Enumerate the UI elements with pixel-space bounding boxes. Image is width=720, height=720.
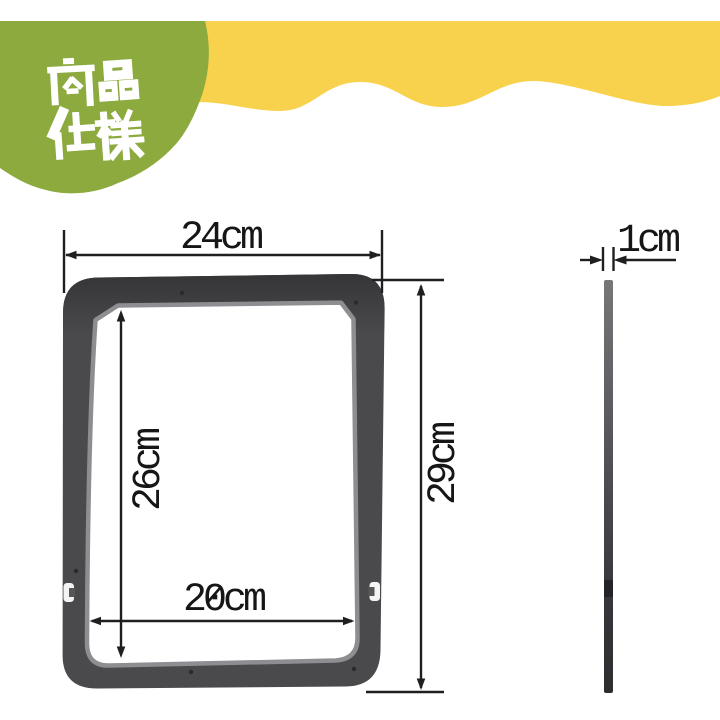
svg-text:26cm: 26cm [127,429,172,511]
svg-text:29cm: 29cm [422,423,467,505]
svg-text:20cm: 20cm [183,578,265,623]
svg-text:1cm: 1cm [617,219,679,264]
svg-text:24cm: 24cm [180,216,262,261]
